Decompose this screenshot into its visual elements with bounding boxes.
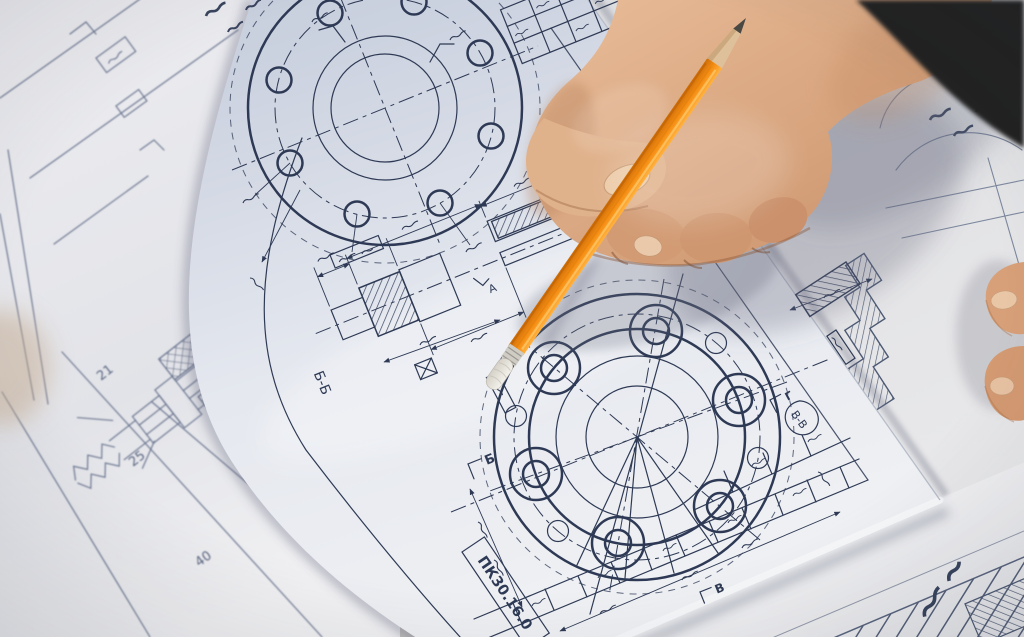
photo-of-blueprints: 21 25 40	[0, 0, 1024, 637]
photo-vignette	[0, 0, 1024, 637]
photo-canvas: 21 25 40	[0, 0, 1024, 637]
